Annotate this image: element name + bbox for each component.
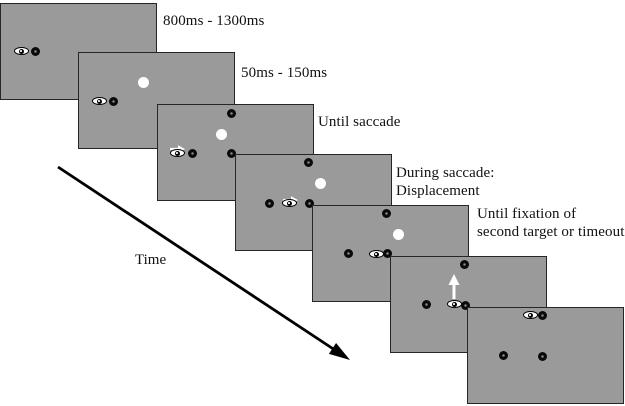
panel-duration-label: 800ms - 1300ms	[163, 12, 264, 30]
eye-glint	[453, 303, 455, 305]
black-dot	[499, 351, 508, 360]
panel-duration-label: During saccade: Displacement	[396, 164, 495, 200]
black-dot	[460, 260, 469, 269]
white-target-dot	[315, 178, 326, 189]
panel-duration-label: Until saccade	[318, 113, 401, 131]
trial-sequence-figure: 800ms - 1300ms50ms - 150msUntil saccadeD…	[0, 0, 625, 406]
black-dot	[382, 209, 391, 218]
eye-glint	[375, 253, 377, 255]
eye-icon	[523, 311, 538, 319]
eye-glint	[176, 152, 178, 154]
eye-icon	[170, 149, 185, 157]
eye-pupil	[19, 49, 24, 54]
white-target-dot	[216, 129, 227, 140]
black-dot	[227, 109, 236, 118]
eye-icon	[369, 250, 384, 258]
screen-panel-final-display	[467, 307, 624, 404]
eye-glint	[98, 100, 100, 102]
eye-pupil	[287, 201, 292, 206]
black-dot	[344, 249, 353, 258]
eye-icon	[282, 199, 297, 207]
white-target-dot	[138, 77, 149, 88]
eye-glint	[529, 314, 531, 316]
black-dot	[31, 47, 40, 56]
eye-icon	[447, 300, 462, 308]
eye-pupil	[175, 151, 180, 156]
time-label: Time	[135, 252, 166, 268]
panel-duration-label: 50ms - 150ms	[241, 64, 327, 82]
eye-icon	[14, 47, 29, 55]
white-target-dot	[393, 229, 404, 240]
eye-pupil	[528, 313, 533, 318]
eye-pupil	[374, 252, 379, 257]
eye-pupil	[452, 302, 457, 307]
eye-glint	[288, 202, 290, 204]
black-dot	[109, 97, 118, 106]
black-dot	[538, 311, 547, 320]
black-dot	[188, 149, 197, 158]
eye-pupil	[97, 99, 102, 104]
eye-icon	[92, 97, 107, 105]
eye-glint	[20, 50, 22, 52]
black-dot	[538, 352, 547, 361]
black-dot	[304, 158, 313, 167]
black-dot	[422, 300, 431, 309]
panel-duration-label: Until fixation of second target or timeo…	[477, 205, 625, 241]
black-dot	[265, 199, 274, 208]
